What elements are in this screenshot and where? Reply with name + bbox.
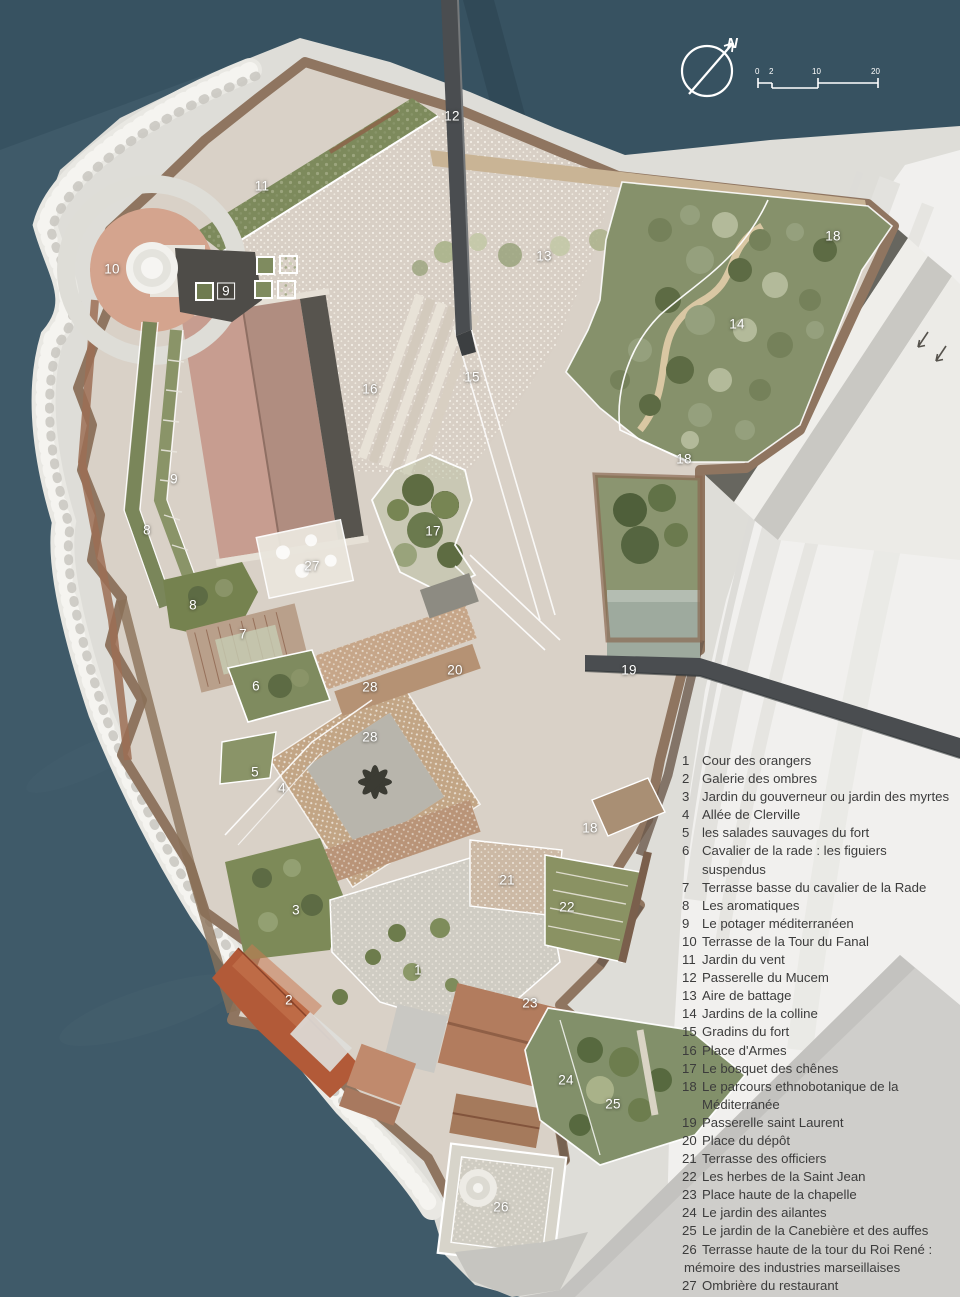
legend-item: 22Les herbes de la Saint Jean (682, 1168, 950, 1186)
map-label-10: 10 (104, 262, 120, 277)
legend-item: 10Terrasse de la Tour du Fanal (682, 933, 950, 951)
legend-item: 24Le jardin des ailantes (682, 1204, 950, 1222)
legend-item: 23Place haute de la chapelle (682, 1186, 950, 1204)
legend-item-number: 1 (682, 752, 699, 770)
legend-item-label: les salades sauvages du fort (699, 824, 950, 842)
legend-item-number: 18 (682, 1078, 699, 1114)
legend-item-label: Passerelle du Mucem (699, 969, 950, 987)
legend-item-label: Le jardin de la Canebière et des auffes (699, 1222, 950, 1240)
map-label-2: 2 (285, 993, 293, 1008)
legend-item-label: Allée de Clerville (699, 806, 950, 824)
legend-item-number: 21 (682, 1150, 699, 1168)
legend-item-number: 14 (682, 1005, 699, 1023)
map-label-5: 5 (251, 765, 259, 780)
map-label-28: 28 (362, 730, 378, 745)
legend-item-label: Terrasse haute de la tour du Roi René : (699, 1241, 950, 1259)
map-label-17: 17 (425, 524, 441, 539)
scale-2: 2 (769, 67, 774, 76)
legend-item-number: 19 (682, 1114, 699, 1132)
legend-item-label: Le potager méditerranéen (699, 915, 950, 933)
legend-item: 20Place du dépôt (682, 1132, 950, 1150)
map-label-15: 15 (464, 370, 480, 385)
legend-item-label: Le bosquet des chênes (699, 1060, 950, 1078)
legend-item: 21Terrasse des officiers (682, 1150, 950, 1168)
legend-item-number: 25 (682, 1222, 699, 1240)
legend-item: 25Le jardin de la Canebière et des auffe… (682, 1222, 950, 1240)
map-label-3: 3 (292, 903, 300, 918)
legend-item: 7Terrasse basse du cavalier de la Rade (682, 879, 950, 897)
legend-item-number: 26 (682, 1241, 699, 1259)
legend-item: 15Gradins du fort (682, 1023, 950, 1041)
map-label-7: 7 (239, 627, 247, 642)
legend-item-number: 9 (682, 915, 699, 933)
map-label-18: 18 (582, 821, 598, 836)
legend-item-label: Place haute de la chapelle (699, 1186, 950, 1204)
scale-10: 10 (812, 67, 821, 76)
map-label-27: 27 (304, 559, 320, 574)
legend-item: 2Galerie des ombres (682, 770, 950, 788)
legend-item-label: Terrasse de la Tour du Fanal (699, 933, 950, 951)
legend-item-label: Ombrière du restaurant (699, 1277, 950, 1295)
legend: 1Cour des orangers2Galerie des ombres3Ja… (682, 752, 950, 1297)
legend-item-number: 23 (682, 1186, 699, 1204)
map-label-18: 18 (676, 452, 692, 467)
legend-item-label: Aire de battage (699, 987, 950, 1005)
north-label: N (727, 35, 739, 52)
map-label-22: 22 (559, 900, 575, 915)
legend-item-number: 3 (682, 788, 699, 806)
map-label-1: 1 (414, 963, 422, 978)
pinwheel (358, 765, 392, 799)
legend-item-label: Terrasse basse du cavalier de la Rade (699, 879, 950, 897)
legend-item-label: Jardin du gouverneur ou jardin des myrte… (699, 788, 950, 806)
site-plan-page: N 0 2 10 20 1211109131814151618981727872… (0, 0, 960, 1297)
legend-item-number: 7 (682, 879, 699, 897)
map-label-16: 16 (362, 382, 378, 397)
legend-item-number: 16 (682, 1042, 699, 1060)
legend-item-label: Gradins du fort (699, 1023, 950, 1041)
legend-item-label: Terrasse des officiers (699, 1150, 950, 1168)
legend-item: 16Place d'Armes (682, 1042, 950, 1060)
east-garden (595, 475, 700, 670)
legend-item-number: 11 (682, 951, 699, 969)
map-label-8: 8 (189, 598, 197, 613)
map-label-28: 28 (362, 680, 378, 695)
legend-item-continuation: mémoire des industries marseillaises (682, 1259, 950, 1277)
legend-item: 11Jardin du vent (682, 951, 950, 969)
legend-item-number: 10 (682, 933, 699, 951)
legend-item-number: 4 (682, 806, 699, 824)
legend-item: 9Le potager méditerranéen (682, 915, 950, 933)
legend-item-number: 6 (682, 842, 699, 878)
legend-item-label: Cour des orangers (699, 752, 950, 770)
legend-item-number: 5 (682, 824, 699, 842)
map-label-11: 11 (255, 179, 270, 194)
legend-item-number: 22 (682, 1168, 699, 1186)
map-label-26: 26 (493, 1200, 509, 1215)
legend-item-number: 27 (682, 1277, 699, 1295)
legend-item-label: Place d'Armes (699, 1042, 950, 1060)
legend-item: 27Ombrière du restaurant (682, 1277, 950, 1295)
legend-item: 5les salades sauvages du fort (682, 824, 950, 842)
legend-item-number: 13 (682, 987, 699, 1005)
legend-item-label: Passerelle saint Laurent (699, 1114, 950, 1132)
legend-item: 1Cour des orangers (682, 752, 950, 770)
legend-item: 14Jardins de la colline (682, 1005, 950, 1023)
map-label-20: 20 (447, 663, 463, 678)
legend-item-number: 12 (682, 969, 699, 987)
map-label-25: 25 (605, 1097, 621, 1112)
legend-item-label: Galerie des ombres (699, 770, 950, 788)
map-label-21: 21 (499, 873, 515, 888)
legend-item-number: 2 (682, 770, 699, 788)
map-label-24: 24 (558, 1073, 574, 1088)
legend-item-number: 8 (682, 897, 699, 915)
legend-item-label: Cavalier de la rade : les figuiers suspe… (699, 842, 950, 878)
map-label-14: 14 (729, 317, 745, 332)
map-label-23: 23 (522, 996, 538, 1011)
legend-item-label: Le parcours ethnobotanique de la Méditer… (699, 1078, 950, 1114)
map-label-9: 9 (170, 472, 178, 487)
legend-item-label: mémoire des industries marseillaises (682, 1259, 950, 1277)
legend-item: 6Cavalier de la rade : les figuiers susp… (682, 842, 950, 878)
legend-item: 17Le bosquet des chênes (682, 1060, 950, 1078)
scale-20: 20 (871, 67, 880, 76)
legend-item-label: Jardins de la colline (699, 1005, 950, 1023)
legend-item-label: Le jardin des ailantes (699, 1204, 950, 1222)
map-label-9: 9 (217, 283, 235, 300)
map-label-19: 19 (621, 663, 637, 678)
legend-item-label: Les aromatiques (699, 897, 950, 915)
map-label-13: 13 (536, 249, 552, 264)
legend-item: 13Aire de battage (682, 987, 950, 1005)
legend-item-number: 17 (682, 1060, 699, 1078)
legend-item: 19Passerelle saint Laurent (682, 1114, 950, 1132)
legend-item-label: Place du dépôt (699, 1132, 950, 1150)
legend-item-number: 20 (682, 1132, 699, 1150)
legend-item-label: Les herbes de la Saint Jean (699, 1168, 950, 1186)
legend-item: 26Terrasse haute de la tour du Roi René … (682, 1241, 950, 1259)
map-label-12: 12 (444, 109, 460, 124)
legend-item: 18Le parcours ethnobotanique de la Médit… (682, 1078, 950, 1114)
legend-item: 4Allée de Clerville (682, 806, 950, 824)
map-label-8: 8 (143, 523, 151, 538)
map-label-4: 4 (278, 781, 286, 796)
map-label-18: 18 (825, 229, 841, 244)
map-label-6: 6 (252, 679, 260, 694)
legend-item: 12Passerelle du Mucem (682, 969, 950, 987)
legend-item-number: 24 (682, 1204, 699, 1222)
scale-0: 0 (755, 67, 760, 76)
legend-item-label: Jardin du vent (699, 951, 950, 969)
legend-item: 8Les aromatiques (682, 897, 950, 915)
legend-item-number: 15 (682, 1023, 699, 1041)
legend-item: 3Jardin du gouverneur ou jardin des myrt… (682, 788, 950, 806)
